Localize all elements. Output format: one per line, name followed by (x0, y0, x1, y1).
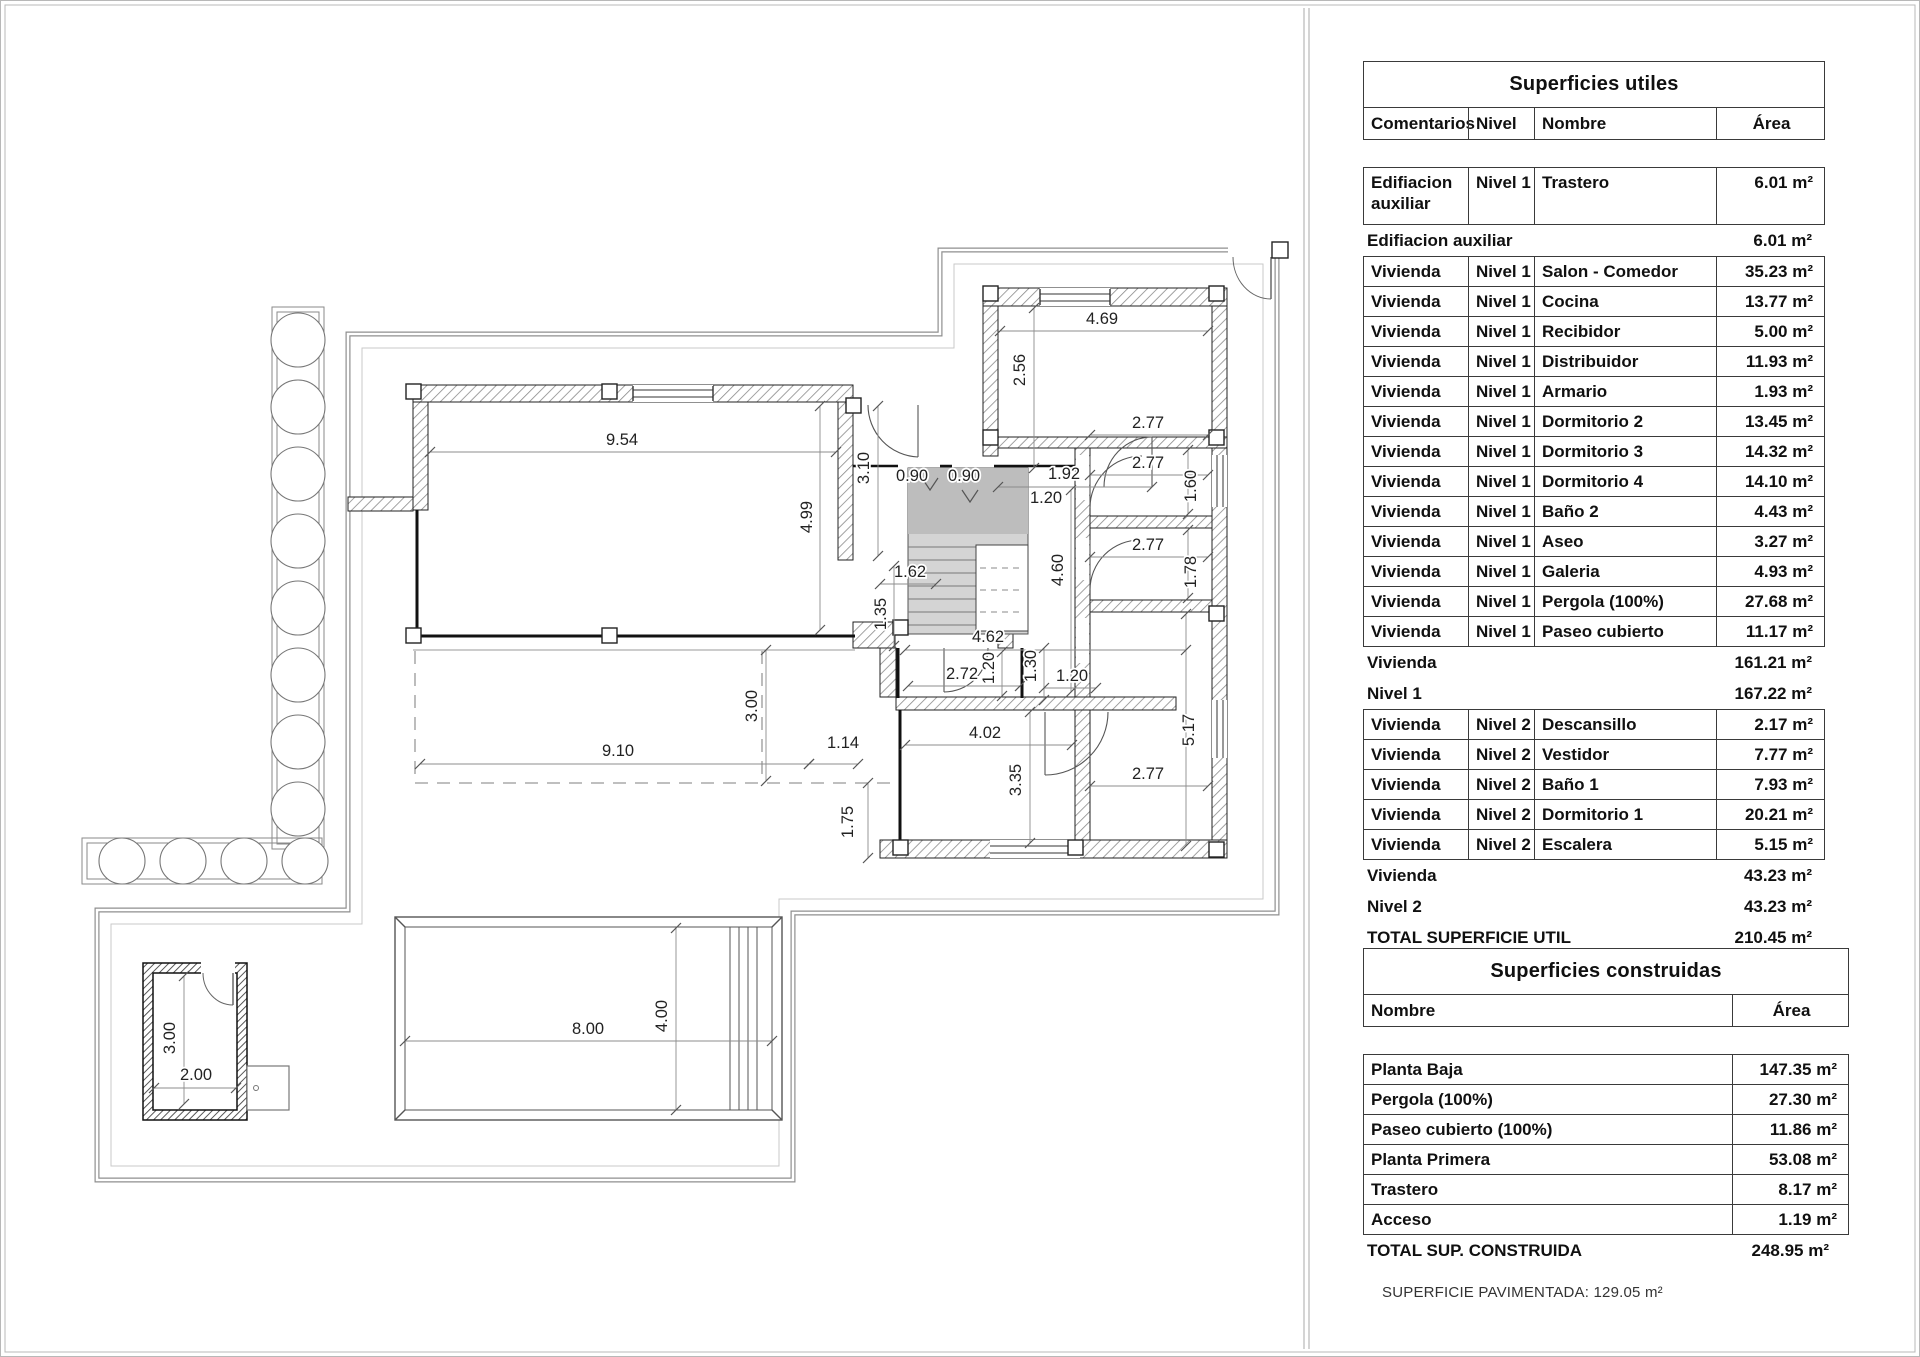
dimension-label: 4.00 (653, 1000, 671, 1032)
summary-label: Nivel 2 (1363, 897, 1422, 917)
summary-value: 43.23 m² (1702, 866, 1825, 886)
table-cell: 7.77 m² (1716, 740, 1826, 769)
table-cell: Acceso (1364, 1205, 1732, 1234)
dimension-label: 3.00 (161, 1022, 179, 1054)
dimension-label: 3.10 (855, 452, 873, 484)
table-cell: Vivienda (1364, 740, 1468, 769)
window (633, 385, 713, 402)
table-title: Superficies construidas (1363, 948, 1849, 995)
table-row-group: ViviendaNivel 2Descansillo2.17 m²Viviend… (1363, 709, 1825, 860)
dimension-label: 3.00 (743, 690, 761, 722)
table-cell: 11.86 m² (1732, 1115, 1850, 1144)
dimension-label: 1.14 (827, 734, 859, 752)
table-row: Acceso1.19 m² (1364, 1204, 1848, 1234)
dimension-label: 2.00 (180, 1066, 212, 1084)
dimension-label: 4.60 (1049, 554, 1067, 586)
tree (160, 838, 206, 884)
table-cell: Nivel 1 (1468, 407, 1534, 436)
table-cell: 1.19 m² (1732, 1205, 1850, 1234)
dimension-label: 4.02 (969, 724, 1001, 742)
table-cell: Vivienda (1364, 557, 1468, 586)
table-cell: Baño 2 (1534, 497, 1716, 526)
table-cell: Salon - Comedor (1534, 257, 1716, 286)
dimension-label: 0.90 (896, 467, 928, 485)
table-cell: 6.01 m² (1716, 168, 1826, 224)
table-body: Planta Baja147.35 m²Pergola (100%)27.30 … (1363, 1027, 1849, 1266)
wall-pillar (1209, 606, 1224, 621)
dimension-label: 0.90 (948, 467, 980, 485)
table-cell: Vivienda (1364, 287, 1468, 316)
table-cell: Vivienda (1364, 770, 1468, 799)
table-row: Edifiacion auxiliarNivel 1Trastero6.01 m… (1364, 168, 1824, 224)
trees (99, 313, 328, 884)
tree (282, 838, 328, 884)
table-cell: Dormitorio 2 (1534, 407, 1716, 436)
table-cell: 27.30 m² (1732, 1085, 1850, 1114)
table-summary-row: Edifiacion auxiliar6.01 m² (1363, 225, 1825, 256)
drawing-sheet: 9.544.993.100.900.901.921.202.564.692.77… (0, 0, 1920, 1357)
table-row: Paseo cubierto (100%)11.86 m² (1364, 1114, 1848, 1144)
table-cell: Distribuidor (1534, 347, 1716, 376)
table-cell: Vivienda (1364, 347, 1468, 376)
table-cell: Nivel 2 (1468, 800, 1534, 829)
wall-pillar (406, 384, 421, 399)
table-cell: 20.21 m² (1716, 800, 1826, 829)
tree (271, 581, 325, 635)
dimension-label: 1.60 (1182, 470, 1200, 502)
table-cell: Cocina (1534, 287, 1716, 316)
summary-value: 210.45 m² (1702, 928, 1825, 948)
table-cell: Nivel 2 (1468, 740, 1534, 769)
door-gaps (1076, 455, 1089, 663)
table-cell: 14.10 m² (1716, 467, 1826, 496)
table-cell: Nivel 1 (1468, 377, 1534, 406)
gate-pillar (1272, 242, 1288, 258)
table-cell: Armario (1534, 377, 1716, 406)
table-cell: Vivienda (1364, 497, 1468, 526)
dimension-label: 2.77 (1132, 765, 1164, 783)
table-cell: Pergola (100%) (1534, 587, 1716, 616)
table-cell: Planta Baja (1364, 1055, 1732, 1084)
table-cell: Trastero (1364, 1175, 1732, 1204)
table-cell: Nivel 1 (1468, 437, 1534, 466)
wall-pillar (1209, 286, 1224, 301)
summary-label: TOTAL SUP. CONSTRUIDA (1363, 1241, 1582, 1261)
table-row: Planta Primera53.08 m² (1364, 1144, 1848, 1174)
table-cell: Escalera (1534, 830, 1716, 859)
table-cell: Nivel 1 (1468, 257, 1534, 286)
column-header: Nombre (1364, 995, 1732, 1026)
wall-pillars (406, 286, 1224, 857)
table-cell: Recibidor (1534, 317, 1716, 346)
table-cell: 1.93 m² (1716, 377, 1826, 406)
table-header: ComentariosNivelNombreÁrea (1363, 108, 1825, 140)
dimension-label: 1.78 (1182, 556, 1200, 588)
table-cell: Nivel 1 (1468, 497, 1534, 526)
table-row: ViviendaNivel 2Escalera5.15 m² (1364, 829, 1824, 859)
dimension-label: 1.92 (1048, 465, 1080, 483)
table-row: Pergola (100%)27.30 m² (1364, 1084, 1848, 1114)
swimming-pool (395, 917, 782, 1120)
house-walls (348, 288, 1227, 858)
table-cell: Paseo cubierto (100%) (1364, 1115, 1732, 1144)
table-cell: Baño 1 (1534, 770, 1716, 799)
table-cell: Vivienda (1364, 317, 1468, 346)
table-summary-row: Vivienda161.21 m² (1363, 647, 1825, 678)
table-header: NombreÁrea (1363, 995, 1849, 1027)
dimension-label: 1.75 (839, 806, 857, 838)
table-cell: Vivienda (1364, 467, 1468, 496)
table-row: ViviendaNivel 1Baño 24.43 m² (1364, 496, 1824, 526)
dimension-label: 1.20 (980, 652, 998, 684)
summary-value: 43.23 m² (1702, 897, 1825, 917)
dimension-label: 8.00 (572, 1020, 604, 1038)
table-row-group: Planta Baja147.35 m²Pergola (100%)27.30 … (1363, 1054, 1849, 1235)
table-row: ViviendaNivel 2Vestidor7.77 m² (1364, 739, 1824, 769)
dimension-label: 2.77 (1132, 536, 1164, 554)
table-cell: 4.43 m² (1716, 497, 1826, 526)
summary-label: Nivel 1 (1363, 684, 1422, 704)
table-cell: 2.17 m² (1716, 710, 1826, 739)
table-cell: Nivel 1 (1468, 557, 1534, 586)
table-cell: 7.93 m² (1716, 770, 1826, 799)
table-row: ViviendaNivel 1Dormitorio 314.32 m² (1364, 436, 1824, 466)
dimension-label: 5.17 (1180, 714, 1198, 746)
table-row: Trastero8.17 m² (1364, 1174, 1848, 1204)
table-superficies-utiles: Superficies utiles ComentariosNivelNombr… (1363, 61, 1825, 953)
table-row-group: ViviendaNivel 1Salon - Comedor35.23 m²Vi… (1363, 256, 1825, 647)
tree (271, 782, 325, 836)
tree (271, 447, 325, 501)
window (990, 840, 1080, 858)
table-cell: 147.35 m² (1732, 1055, 1850, 1084)
table-row: ViviendaNivel 1Pergola (100%)27.68 m² (1364, 586, 1824, 616)
wall-pillar (602, 628, 617, 643)
table-row: ViviendaNivel 1Aseo3.27 m² (1364, 526, 1824, 556)
dimension-label: 4.62 (972, 628, 1004, 646)
table-cell: Vivienda (1364, 527, 1468, 556)
tree (271, 648, 325, 702)
wall-pillar (893, 840, 908, 855)
column-header: Área (1716, 108, 1826, 139)
table-summary-row: Vivienda43.23 m² (1363, 860, 1825, 891)
table-cell: Vivienda (1364, 830, 1468, 859)
dimension-label: 2.72 (946, 665, 978, 683)
tree (271, 380, 325, 434)
table-cell: Dormitorio 3 (1534, 437, 1716, 466)
table-cell: Nivel 1 (1468, 587, 1534, 616)
paved-surface-note: SUPERFICIE PAVIMENTADA: 129.05 m² (1382, 1284, 1663, 1301)
door (868, 405, 918, 457)
dimension-label: 1.20 (1056, 667, 1088, 685)
table-cell: Nivel 1 (1468, 287, 1534, 316)
table-cell: Vivienda (1364, 437, 1468, 466)
dimension-label: 2.77 (1132, 454, 1164, 472)
tree (221, 838, 267, 884)
table-cell: 13.45 m² (1716, 407, 1826, 436)
table-cell: Vivienda (1364, 710, 1468, 739)
summary-value: 6.01 m² (1702, 231, 1825, 251)
column-header: Nombre (1534, 108, 1716, 139)
table-body: Edifiacion auxiliarNivel 1Trastero6.01 m… (1363, 140, 1825, 953)
dimension-label: 4.69 (1086, 310, 1118, 328)
table-row: ViviendaNivel 1Dormitorio 414.10 m² (1364, 466, 1824, 496)
dimension-label: 2.77 (1132, 414, 1164, 432)
table-cell: Nivel 2 (1468, 710, 1534, 739)
table-cell: Vestidor (1534, 740, 1716, 769)
table-cell: Nivel 1 (1468, 617, 1534, 646)
table-row: ViviendaNivel 1Recibidor5.00 m² (1364, 316, 1824, 346)
table-cell: Dormitorio 1 (1534, 800, 1716, 829)
wall-pillar (602, 384, 617, 399)
table-summary-row: TOTAL SUP. CONSTRUIDA248.95 m² (1363, 1235, 1849, 1266)
table-cell: Descansillo (1534, 710, 1716, 739)
table-cell: Nivel 1 (1468, 317, 1534, 346)
staircase (908, 468, 1028, 634)
summary-label: Vivienda (1363, 653, 1437, 673)
wall-pillar (983, 286, 998, 301)
summary-value: 167.22 m² (1702, 684, 1825, 704)
dimension-label: 9.54 (606, 431, 638, 449)
table-summary-row: Nivel 1167.22 m² (1363, 678, 1825, 709)
dimension-label: 3.35 (1007, 764, 1025, 796)
table-cell: 13.77 m² (1716, 287, 1826, 316)
table-cell: Vivienda (1364, 587, 1468, 616)
table-cell: Nivel 1 (1468, 347, 1534, 376)
table-cell: 53.08 m² (1732, 1145, 1850, 1174)
tree (99, 838, 145, 884)
table-cell: Vivienda (1364, 257, 1468, 286)
summary-label: Edifiacion auxiliar (1363, 231, 1513, 251)
table-title: Superficies utiles (1363, 61, 1825, 108)
table-row: ViviendaNivel 1Salon - Comedor35.23 m² (1364, 257, 1824, 286)
table-cell: Trastero (1534, 168, 1716, 224)
table-row-group: Edifiacion auxiliarNivel 1Trastero6.01 m… (1363, 167, 1825, 225)
summary-value: 161.21 m² (1702, 653, 1825, 673)
table-row: ViviendaNivel 1Cocina13.77 m² (1364, 286, 1824, 316)
table-row: ViviendaNivel 1Galeria4.93 m² (1364, 556, 1824, 586)
table-cell: 5.15 m² (1716, 830, 1826, 859)
window (1212, 700, 1227, 758)
table-cell: 14.32 m² (1716, 437, 1826, 466)
table-cell: Nivel 2 (1468, 770, 1534, 799)
pergola-outline (415, 651, 890, 783)
wall-pillar (983, 430, 998, 445)
summary-value: 248.95 m² (1711, 1241, 1849, 1261)
table-summary-row: Nivel 243.23 m² (1363, 891, 1825, 922)
table-cell: 35.23 m² (1716, 257, 1826, 286)
dimension-label: 9.10 (602, 742, 634, 760)
table-cell: Paseo cubierto (100%) (1534, 617, 1716, 646)
table-cell: 3.27 m² (1716, 527, 1826, 556)
tree (271, 715, 325, 769)
table-cell: Aseo (1534, 527, 1716, 556)
table-cell: Pergola (100%) (1364, 1085, 1732, 1114)
window (1212, 455, 1227, 507)
table-cell: 11.17 m² (1716, 617, 1826, 646)
wall-pillar (846, 398, 861, 413)
table-row: ViviendaNivel 1Paseo cubierto (100%)11.1… (1364, 616, 1824, 646)
table-superficies-construidas: Superficies construidas NombreÁrea Plant… (1363, 948, 1849, 1266)
column-header: Área (1732, 995, 1850, 1026)
sheet-divider-line (1304, 8, 1309, 1349)
window (1040, 288, 1110, 306)
table-cell: Vivienda (1364, 800, 1468, 829)
table-cell: 27.68 m² (1716, 587, 1826, 616)
tree (271, 514, 325, 568)
table-cell: Nivel 1 (1468, 467, 1534, 496)
table-cell: Nivel 2 (1468, 830, 1534, 859)
wall-pillar (1209, 842, 1224, 857)
table-cell: Vivienda (1364, 617, 1468, 646)
column-header: Comentarios (1364, 108, 1468, 139)
table-cell: 11.93 m² (1716, 347, 1826, 376)
table-row: ViviendaNivel 2Baño 17.93 m² (1364, 769, 1824, 799)
table-cell: Nivel 1 (1468, 168, 1534, 224)
table-cell: Dormitorio 4 (1534, 467, 1716, 496)
table-row: ViviendaNivel 2Dormitorio 120.21 m² (1364, 799, 1824, 829)
summary-label: Vivienda (1363, 866, 1437, 886)
table-cell: 8.17 m² (1732, 1175, 1850, 1204)
summary-label: TOTAL SUPERFICIE UTIL (1363, 928, 1571, 948)
table-cell: 4.93 m² (1716, 557, 1826, 586)
table-cell: Planta Primera (1364, 1145, 1732, 1174)
tree (271, 313, 325, 367)
dimension-label: 1.20 (1030, 489, 1062, 507)
wall-pillar (406, 628, 421, 643)
dimension-label: 1.35 (872, 598, 890, 630)
table-cell: Edifiacion auxiliar (1364, 168, 1468, 224)
column-header: Nivel (1468, 108, 1534, 139)
dimension-label: 1.30 (1022, 650, 1040, 682)
table-row: Planta Baja147.35 m² (1364, 1055, 1848, 1084)
dimension-label: 2.56 (1011, 354, 1029, 386)
table-cell: Vivienda (1364, 377, 1468, 406)
wall-pillar (893, 620, 908, 635)
understair (976, 545, 1028, 631)
dimension-label: 4.99 (798, 501, 816, 533)
table-cell: 5.00 m² (1716, 317, 1826, 346)
table-cell: Nivel 1 (1468, 527, 1534, 556)
table-row: ViviendaNivel 1Distribuidor11.93 m² (1364, 346, 1824, 376)
table-row: ViviendaNivel 1Dormitorio 213.45 m² (1364, 406, 1824, 436)
table-row: ViviendaNivel 2Descansillo2.17 m² (1364, 710, 1824, 739)
table-cell: Vivienda (1364, 407, 1468, 436)
table-cell: Galeria (1534, 557, 1716, 586)
table-row: ViviendaNivel 1Armario1.93 m² (1364, 376, 1824, 406)
wall-pillar (1068, 840, 1083, 855)
dimension-label: 1.62 (894, 563, 926, 581)
